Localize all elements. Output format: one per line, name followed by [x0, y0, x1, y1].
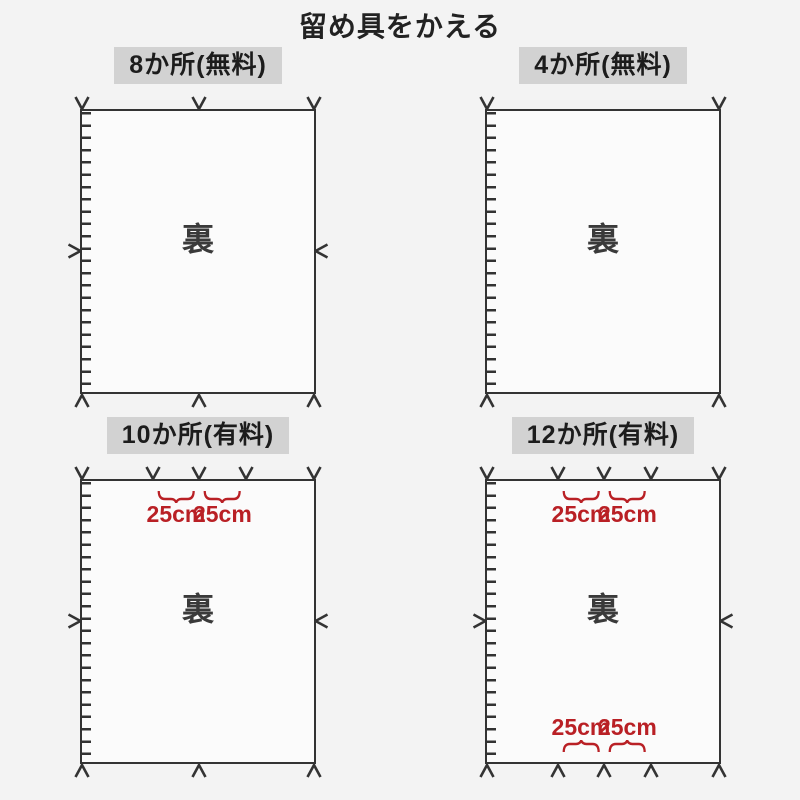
panel-header: 8か所(無料)	[114, 47, 282, 84]
panel-header: 4か所(無料)	[519, 47, 687, 84]
seam-stitches	[487, 482, 496, 761]
fastener-mark-icon	[306, 466, 323, 480]
fastener-mark-icon	[479, 466, 496, 480]
fabric-sheet-back: 裏 25cm25cm	[80, 479, 316, 764]
fastener-mark-icon	[74, 96, 91, 110]
fastener-mark-icon	[74, 764, 91, 778]
fastener-mark-icon	[306, 394, 323, 408]
fastener-mark-icon	[191, 394, 208, 408]
panel-10-places: 10か所(有料) 裏 25cm25cm	[38, 417, 358, 764]
panel-header: 12か所(有料)	[512, 417, 694, 454]
fastener-mark-icon	[315, 613, 329, 630]
fastener-mark-icon	[711, 764, 728, 778]
fabric-sheet-back: 裏 25cm25cm25cm25cm	[485, 479, 721, 764]
fastener-mark-icon	[68, 613, 82, 630]
measure-label: 25cm	[598, 716, 657, 739]
fastener-mark-icon	[479, 96, 496, 110]
fastener-mark-icon	[473, 613, 487, 630]
seam-stitches	[487, 112, 496, 391]
fastener-mark-icon	[191, 764, 208, 778]
measure-brace-icon	[562, 740, 600, 754]
fastener-mark-icon	[642, 466, 659, 480]
fastener-mark-icon	[68, 243, 82, 260]
measure-brace-icon	[608, 740, 646, 754]
fastener-mark-icon	[191, 466, 208, 480]
fastener-mark-icon	[144, 466, 161, 480]
panel-12-places: 12か所(有料) 裏 25cm25cm25cm25cm	[443, 417, 763, 764]
fastener-mark-icon	[549, 466, 566, 480]
seam-stitches	[82, 482, 91, 761]
fastener-mark-icon	[237, 466, 254, 480]
fastener-mark-icon	[596, 466, 613, 480]
fastener-mark-icon	[315, 243, 329, 260]
fastener-mark-icon	[191, 96, 208, 110]
fastener-mark-icon	[306, 764, 323, 778]
fastener-mark-icon	[720, 613, 734, 630]
back-side-label: 裏	[182, 584, 214, 630]
fastener-mark-icon	[74, 394, 91, 408]
fabric-sheet-back: 裏	[80, 109, 316, 394]
fastener-mark-icon	[596, 764, 613, 778]
fastener-mark-icon	[74, 466, 91, 480]
fastener-mark-icon	[711, 96, 728, 110]
page-title: 留め具をかえる	[0, 5, 800, 45]
back-side-label: 裏	[182, 214, 214, 260]
fastener-mark-icon	[479, 764, 496, 778]
panel-header: 10か所(有料)	[107, 417, 289, 454]
fastener-mark-icon	[711, 466, 728, 480]
fastener-mark-icon	[711, 394, 728, 408]
measure-label: 25cm	[193, 503, 252, 526]
fabric-sheet-back: 裏	[485, 109, 721, 394]
seam-stitches	[82, 112, 91, 391]
panel-4-places: 4か所(無料) 裏	[443, 47, 763, 394]
measure-label: 25cm	[598, 503, 657, 526]
panel-8-places: 8か所(無料) 裏	[38, 47, 358, 394]
fastener-mark-icon	[479, 394, 496, 408]
back-side-label: 裏	[587, 214, 619, 260]
back-side-label: 裏	[587, 584, 619, 630]
fastener-mark-icon	[549, 764, 566, 778]
fastener-mark-icon	[306, 96, 323, 110]
fastener-mark-icon	[642, 764, 659, 778]
